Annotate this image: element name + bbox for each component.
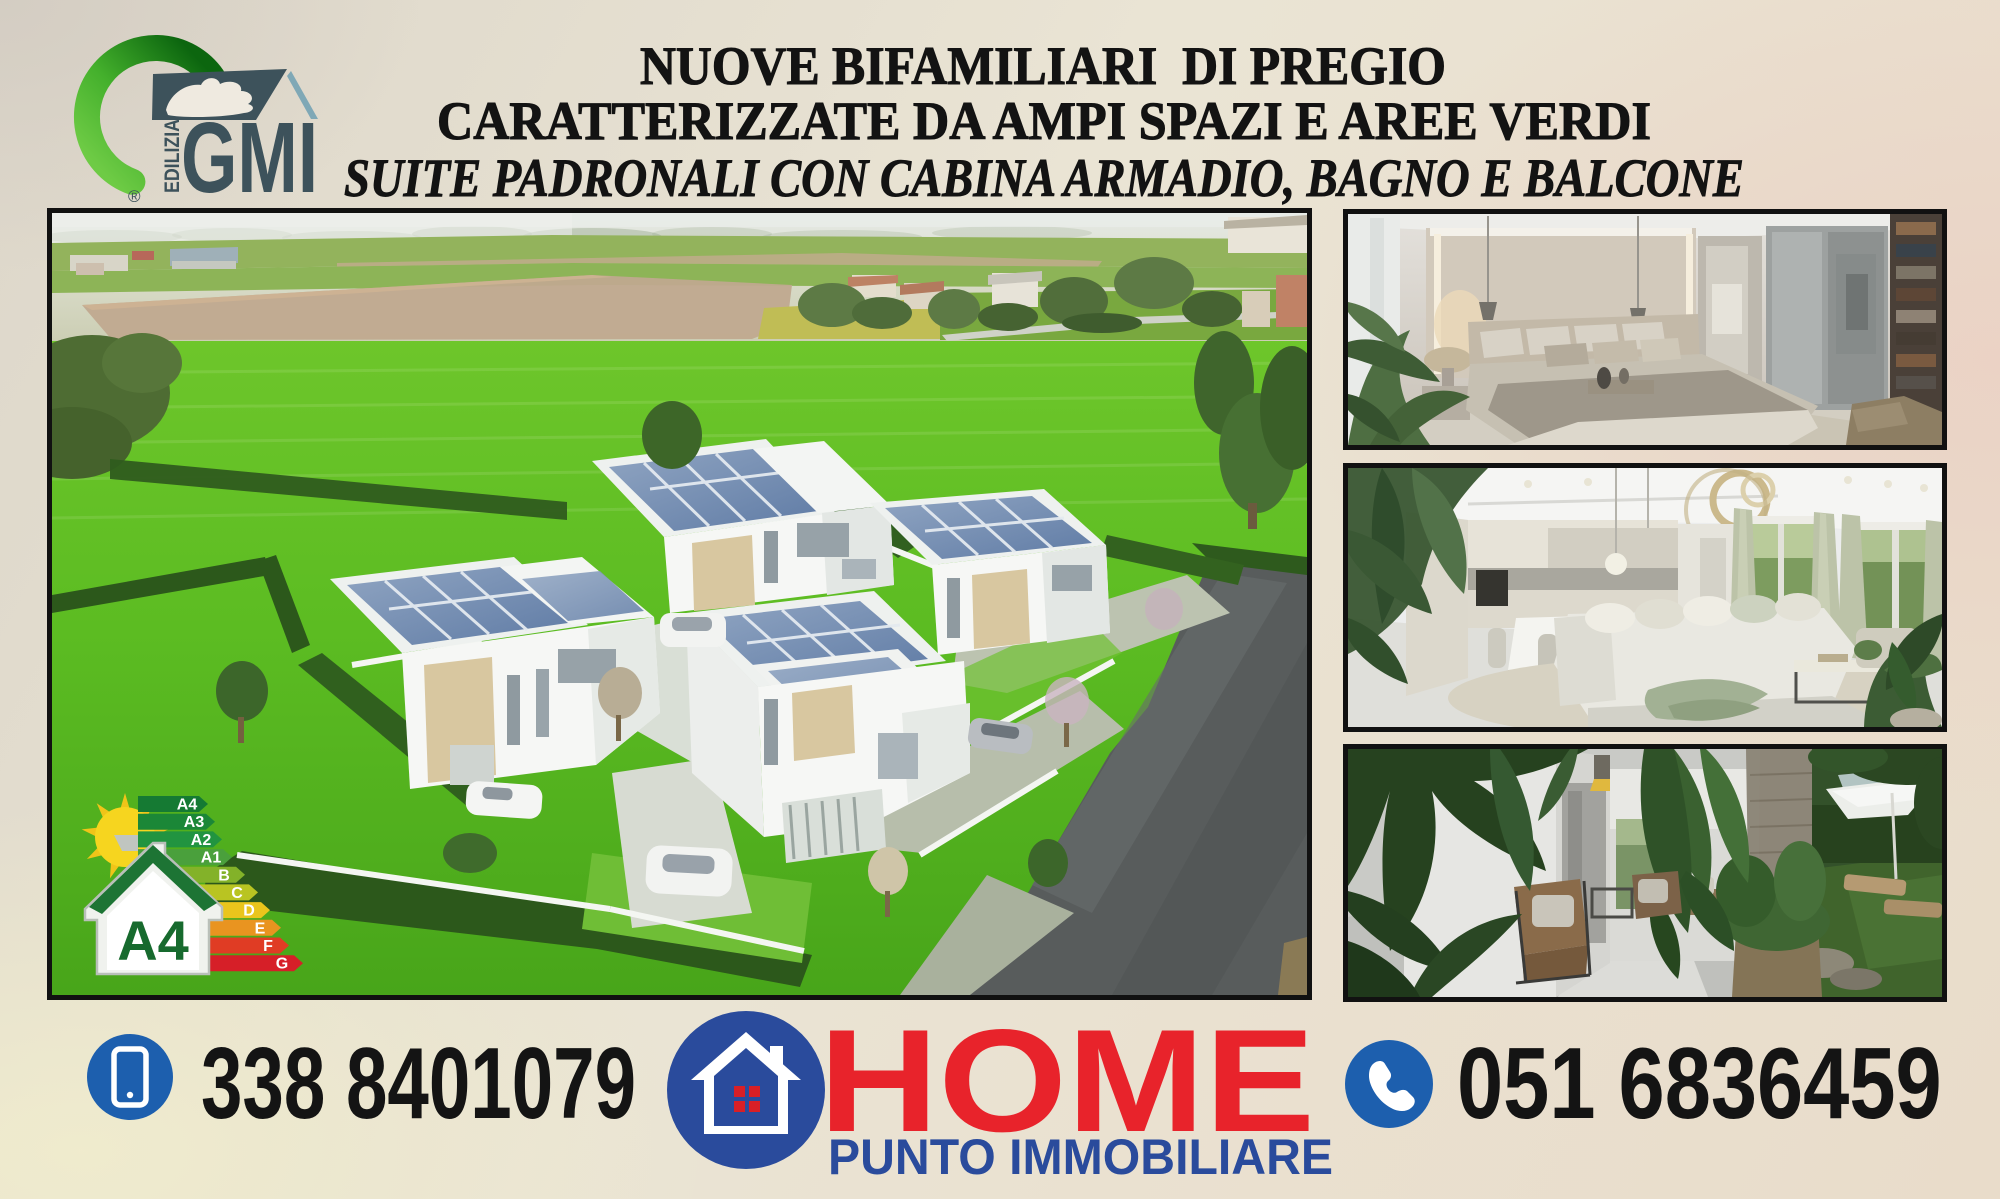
svg-text:B: B [218, 867, 230, 884]
svg-text:PUNTO IMMOBILIARE: PUNTO IMMOBILIARE [828, 1129, 1333, 1185]
svg-text:A2: A2 [191, 832, 212, 849]
svg-text:CARATTERIZZATE DA AMPI SPAZI E: CARATTERIZZATE DA AMPI SPAZI E AREE VERD… [437, 91, 1651, 151]
svg-text:A4: A4 [177, 797, 198, 814]
svg-text:G: G [276, 956, 288, 973]
svg-text:NUOVE BIFAMILIARI DI PREGIO: NUOVE BIFAMILIARI DI PREGIO [640, 36, 1446, 96]
svg-text:SUITE PADRONALI CON CABINA ARM: SUITE PADRONALI CON CABINA ARMADIO, BAGN… [344, 148, 1744, 208]
svg-text:E: E [255, 920, 266, 937]
svg-text:A1: A1 [201, 850, 222, 867]
svg-text:C: C [231, 885, 243, 902]
svg-text:A3: A3 [184, 814, 205, 831]
svg-text:F: F [263, 938, 273, 955]
svg-text:D: D [243, 903, 255, 920]
svg-text:A4: A4 [117, 909, 189, 972]
